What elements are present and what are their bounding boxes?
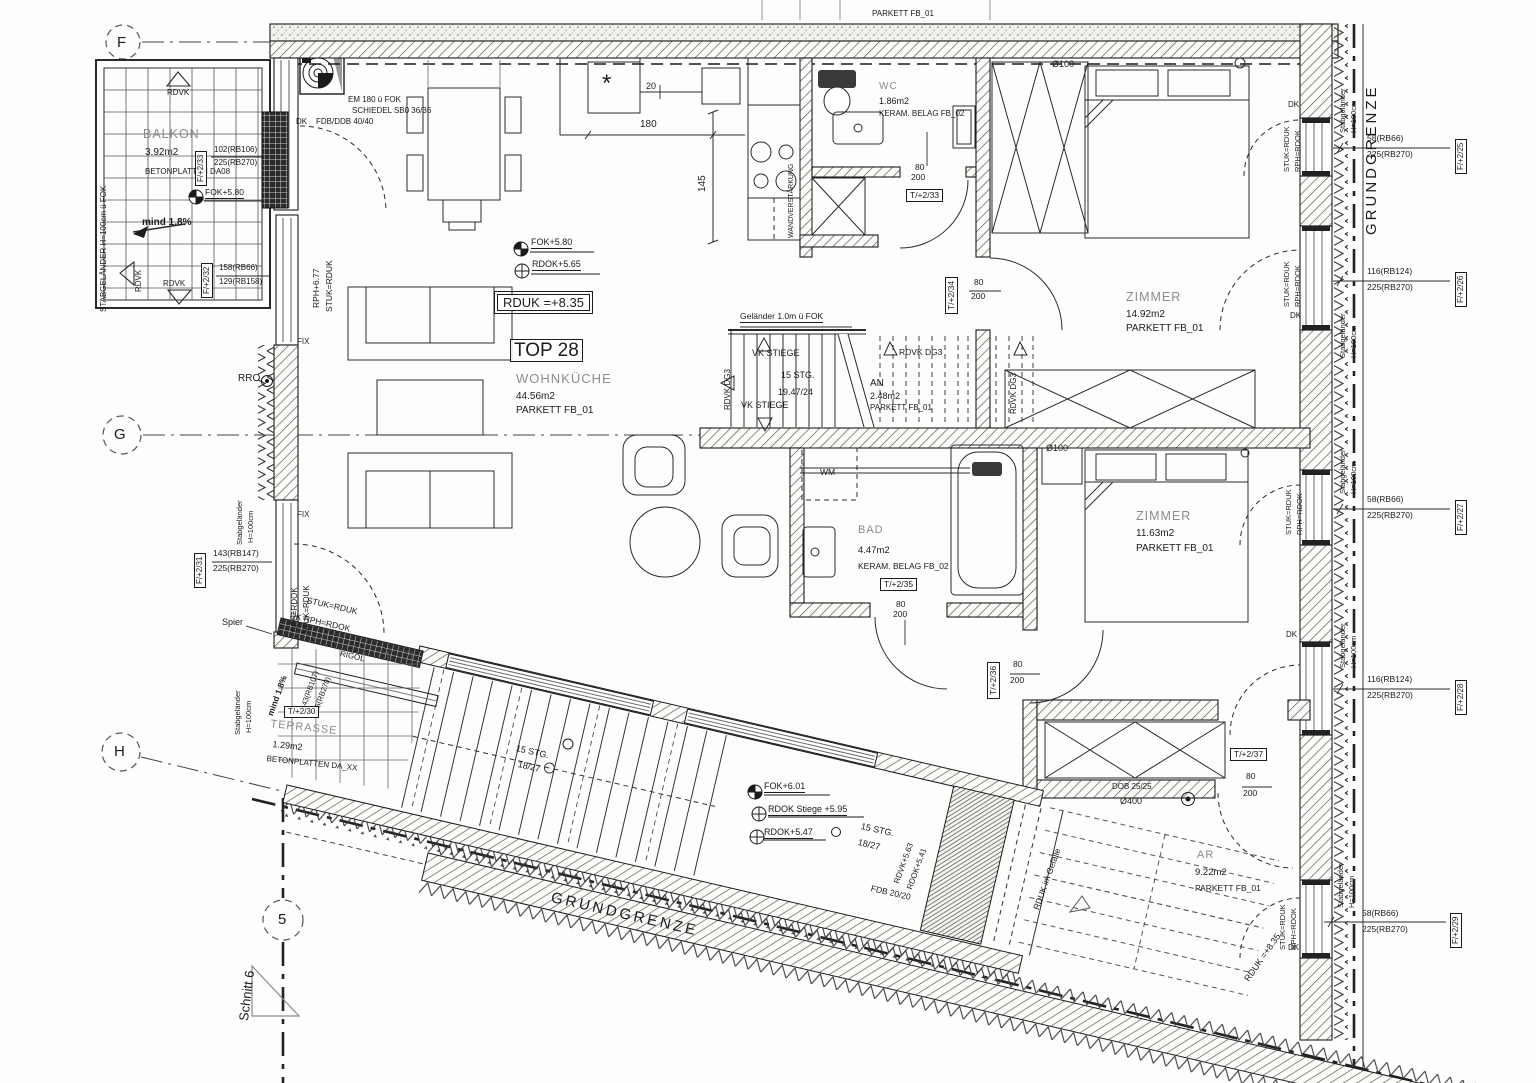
door-tag-t34: T/+2/34 bbox=[945, 277, 958, 314]
stair-railing-label: Geländer 1.0m ü FOK bbox=[740, 312, 823, 323]
room-area-bad: 4.47m2 bbox=[858, 546, 890, 556]
grid-label-h: H bbox=[114, 744, 125, 759]
grid-label-g: G bbox=[114, 427, 126, 442]
window-tag-f25: F/+2/25 bbox=[1455, 139, 1467, 174]
room-area-zimmer1: 14.92m2 bbox=[1126, 310, 1165, 320]
dk-1: DK bbox=[1288, 101, 1299, 109]
door-h-t34: 200 bbox=[971, 292, 985, 301]
stab-r3: Stabgeländer bbox=[1339, 449, 1347, 494]
stuk-rduk-left2: STUK=RDUK bbox=[303, 585, 311, 634]
stuk-r1: STUK=RDUK bbox=[1283, 126, 1291, 172]
window-code-f27-1: 58(RB66) bbox=[1367, 495, 1403, 504]
room-floor-wohnkueche: PARKETT FB_01 bbox=[516, 406, 593, 416]
chimney-em-label: EM 180 ü FOK bbox=[348, 96, 401, 104]
room-finish-wc: KERAM. BELAG FB_02 bbox=[879, 110, 964, 118]
door-h-t37: 200 bbox=[1243, 789, 1257, 798]
stuk-r2: STUK=RDUK bbox=[1283, 261, 1291, 307]
rph-r3: RPH=RDOK bbox=[1296, 493, 1304, 535]
window-code-f26-1: 116(RB124) bbox=[1367, 267, 1412, 276]
chimney-fdb-label: FDB/DDB 40/40 bbox=[316, 118, 373, 126]
window-code-f31-2: 225(RB270) bbox=[213, 564, 259, 573]
door-tag-t37: T/+2/37 bbox=[1230, 748, 1267, 761]
dk-3: DK bbox=[1286, 631, 1297, 639]
d400-label: Ø400 bbox=[1120, 797, 1142, 806]
h100-r2: H=100cm bbox=[1350, 326, 1358, 358]
room-finish-balkon: BETONPLATTEN DA08 bbox=[145, 168, 230, 176]
h100-r1: H=100cm bbox=[1350, 101, 1358, 133]
rph-r4: RPH=RDOK bbox=[1290, 908, 1298, 950]
level-rph677: RPH+6.77 bbox=[312, 269, 321, 308]
window-code-f32-1: 158(RB66) bbox=[219, 264, 258, 272]
window-tag-f28: F/+2/28 bbox=[1455, 680, 1467, 715]
railing-label-balkon: STABGELÄNDER H=100cm ü FOK bbox=[100, 186, 108, 312]
stab-r4: Stabgeländer bbox=[1339, 623, 1347, 668]
stab-r1: Stabgeländer bbox=[1339, 88, 1347, 133]
room-area-wc: 1.86m2 bbox=[879, 97, 909, 106]
dim-20: 20 bbox=[646, 82, 656, 91]
room-label-an: AN bbox=[870, 379, 884, 389]
grid-label-f: F bbox=[117, 35, 126, 50]
chimney-schiedel-label: SCHIEDEL SB0 36/36 bbox=[352, 107, 431, 115]
room-area-an: 2.48m2 bbox=[870, 392, 900, 401]
rph-r2: RPH=RDOK bbox=[1294, 265, 1302, 307]
rdvk-top: RDVK bbox=[167, 89, 189, 97]
h100-left: H=100cm bbox=[247, 511, 255, 543]
door-tag-t36: T/+2/36 bbox=[987, 662, 1000, 699]
window-tag-f31: F/+2/31 bbox=[194, 553, 206, 588]
room-label-zimmer2: ZIMMER bbox=[1136, 510, 1191, 523]
level-rdok547: RDOK+5.47 bbox=[764, 828, 813, 839]
h100-r5: H=100cm bbox=[1348, 876, 1356, 908]
door-tag-t35: T/+2/35 bbox=[880, 578, 917, 591]
stab-r5: Stabgeländer bbox=[1337, 863, 1345, 908]
stab-r2: Stabgeländer bbox=[1339, 313, 1347, 358]
level-rdok-stiege: RDOK Stiege +5.95 bbox=[768, 805, 847, 816]
steigung-upper: 19.47/24 bbox=[778, 388, 813, 397]
door-h-t35: 200 bbox=[893, 610, 907, 619]
slope-label-balkon: mind 1.8% bbox=[142, 218, 191, 228]
level-rdok565: RDOK+5.65 bbox=[532, 260, 581, 271]
unit-tag: TOP 28 bbox=[510, 339, 583, 362]
duct-d100-2: Ø100 bbox=[1046, 444, 1068, 453]
floorplan-top28: PARKETT FB_01 EM 180 ü FOK SCHIEDEL SB0 … bbox=[0, 0, 1536, 1083]
stuk-rduk-left: STUK=RDUK bbox=[325, 260, 334, 312]
window-code-f33-2: 225(RB270) bbox=[214, 159, 257, 167]
room-label-wc: WC bbox=[879, 82, 898, 92]
h100-terrace: H=100cm bbox=[245, 701, 253, 733]
room-finish-bad: KERAM. BELAG FB_02 bbox=[858, 562, 949, 571]
rdvk-bottom: RDVK bbox=[163, 280, 185, 288]
h100-r4: H=100cm bbox=[1350, 636, 1358, 668]
window-tag-f33: F/+2/33 bbox=[195, 151, 207, 186]
rdvk-dg3-top: RDVK DG3 bbox=[899, 348, 942, 357]
door-h-t36: 200 bbox=[1010, 676, 1024, 685]
stuk-r3: STUK=RDUK bbox=[1285, 489, 1293, 535]
rdvk-dg3-right: RDVK DG3 bbox=[1010, 373, 1018, 414]
bedroom1-furniture bbox=[992, 58, 1255, 428]
dim-180: 180 bbox=[640, 120, 657, 130]
grid-label-5: 5 bbox=[278, 912, 286, 927]
bedroom2-furniture bbox=[1042, 448, 1249, 778]
window-tag-f27: F/+2/27 bbox=[1455, 500, 1467, 535]
room-label-zimmer1: ZIMMER bbox=[1126, 291, 1181, 304]
window-code-f29-1: 58(RB66) bbox=[1362, 909, 1398, 918]
window-code-f28-1: 116(RB124) bbox=[1367, 675, 1412, 684]
room-label-wohnkueche: WOHNKÜCHE bbox=[516, 372, 612, 385]
stab-left: Stabgeländer bbox=[236, 500, 244, 545]
room-label-balkon: BALKON bbox=[143, 128, 200, 141]
ar-ramp bbox=[1019, 808, 1279, 996]
vk-stiege-1: VK STIEGE bbox=[752, 349, 800, 358]
dining-set bbox=[407, 60, 521, 230]
fix-label-2: FIX bbox=[297, 511, 309, 519]
rdvk-left: RDVK bbox=[135, 270, 143, 292]
window-code-f31-1: 143(RB147) bbox=[213, 549, 259, 558]
window-code-f27-2: 225(RB270) bbox=[1367, 511, 1413, 520]
room-floor-ar: PARKETT FB_01 bbox=[1195, 884, 1261, 893]
door-w-t34: 80 bbox=[974, 278, 983, 287]
spier-label: Spier bbox=[222, 618, 243, 627]
rro-label: RRO bbox=[238, 374, 260, 384]
door-w-wc: 80 bbox=[915, 163, 924, 172]
dim-145: 145 bbox=[698, 175, 708, 192]
door-tag-t30: T/+2/30 bbox=[284, 706, 319, 718]
stg-upper: 15 STG. bbox=[781, 371, 815, 380]
dob-label: DOB 25/25 bbox=[1112, 783, 1152, 791]
level-fok580: FOK+5.80 bbox=[531, 238, 572, 249]
fix-label-1: FIX bbox=[297, 338, 309, 346]
door-w-t35: 80 bbox=[896, 600, 905, 609]
rdvk-dg3-left: RDVK DG3 bbox=[724, 369, 732, 410]
door-tag-t33: T/+2/33 bbox=[906, 189, 943, 202]
grundgrenze-right: GRUNDGRENZE bbox=[1364, 84, 1379, 235]
room-floor-zimmer2: PARKETT FB_01 bbox=[1136, 544, 1213, 554]
cut-floor-label: PARKETT FB_01 bbox=[872, 10, 934, 18]
window-code-f32-2: 129(RB158) bbox=[219, 278, 262, 286]
room-label-ar: AR bbox=[1197, 850, 1214, 861]
slope-arrow bbox=[1070, 896, 1090, 912]
dk-2: DK bbox=[1290, 312, 1301, 320]
level-fok601: FOK+6.01 bbox=[764, 782, 805, 793]
room-floor-an: PARKETT FB_01 bbox=[870, 404, 932, 412]
rduk-box: RDUK =+8.35 bbox=[497, 294, 590, 311]
sink-symbol: * bbox=[602, 72, 611, 96]
level-fok580-balkon: FOK+5.80 bbox=[205, 188, 244, 199]
window-tag-f29: F/+2/29 bbox=[1450, 913, 1462, 948]
window-tag-f32: F/+2/32 bbox=[201, 263, 213, 298]
stab-terrace: Stabgeländer bbox=[234, 690, 242, 735]
window-code-f28-2: 225(RB270) bbox=[1367, 691, 1413, 700]
room-area-ar: 9.22m2 bbox=[1195, 868, 1227, 878]
window-tag-f26: F/+2/26 bbox=[1455, 272, 1467, 307]
door-w-t36: 80 bbox=[1013, 660, 1022, 669]
leader-lines bbox=[212, 0, 1450, 927]
chimney-dk-label: DK bbox=[296, 118, 307, 126]
duct-d100-1: Ø100 bbox=[1052, 60, 1074, 69]
h100-r3: H=100cm bbox=[1350, 462, 1358, 494]
window-code-f26-2: 225(RB270) bbox=[1367, 283, 1413, 292]
window-code-f29-2: 225(RB270) bbox=[1362, 925, 1408, 934]
room-floor-zimmer1: PARKETT FB_01 bbox=[1126, 324, 1203, 334]
room-area-balkon: 3.92m2 bbox=[145, 148, 178, 158]
room-area-wohnkueche: 44.56m2 bbox=[516, 392, 555, 402]
room-label-bad: BAD bbox=[858, 525, 884, 536]
room-area-zimmer2: 11.63m2 bbox=[1136, 529, 1174, 539]
vk-stiege-2: VK STIEGE bbox=[741, 401, 789, 410]
rph-r1: RPH=RDOK bbox=[1294, 130, 1302, 172]
door-w-t37: 80 bbox=[1246, 772, 1255, 781]
stuk-r4: STUK=RDUK bbox=[1279, 904, 1287, 950]
wall-reinforcement-label: WANDVERSTÄRKUNG bbox=[788, 164, 795, 238]
door-h-wc: 200 bbox=[911, 173, 925, 182]
wm-label: WM bbox=[820, 468, 835, 477]
window-code-f33-1: 102(RB106) bbox=[214, 146, 257, 154]
